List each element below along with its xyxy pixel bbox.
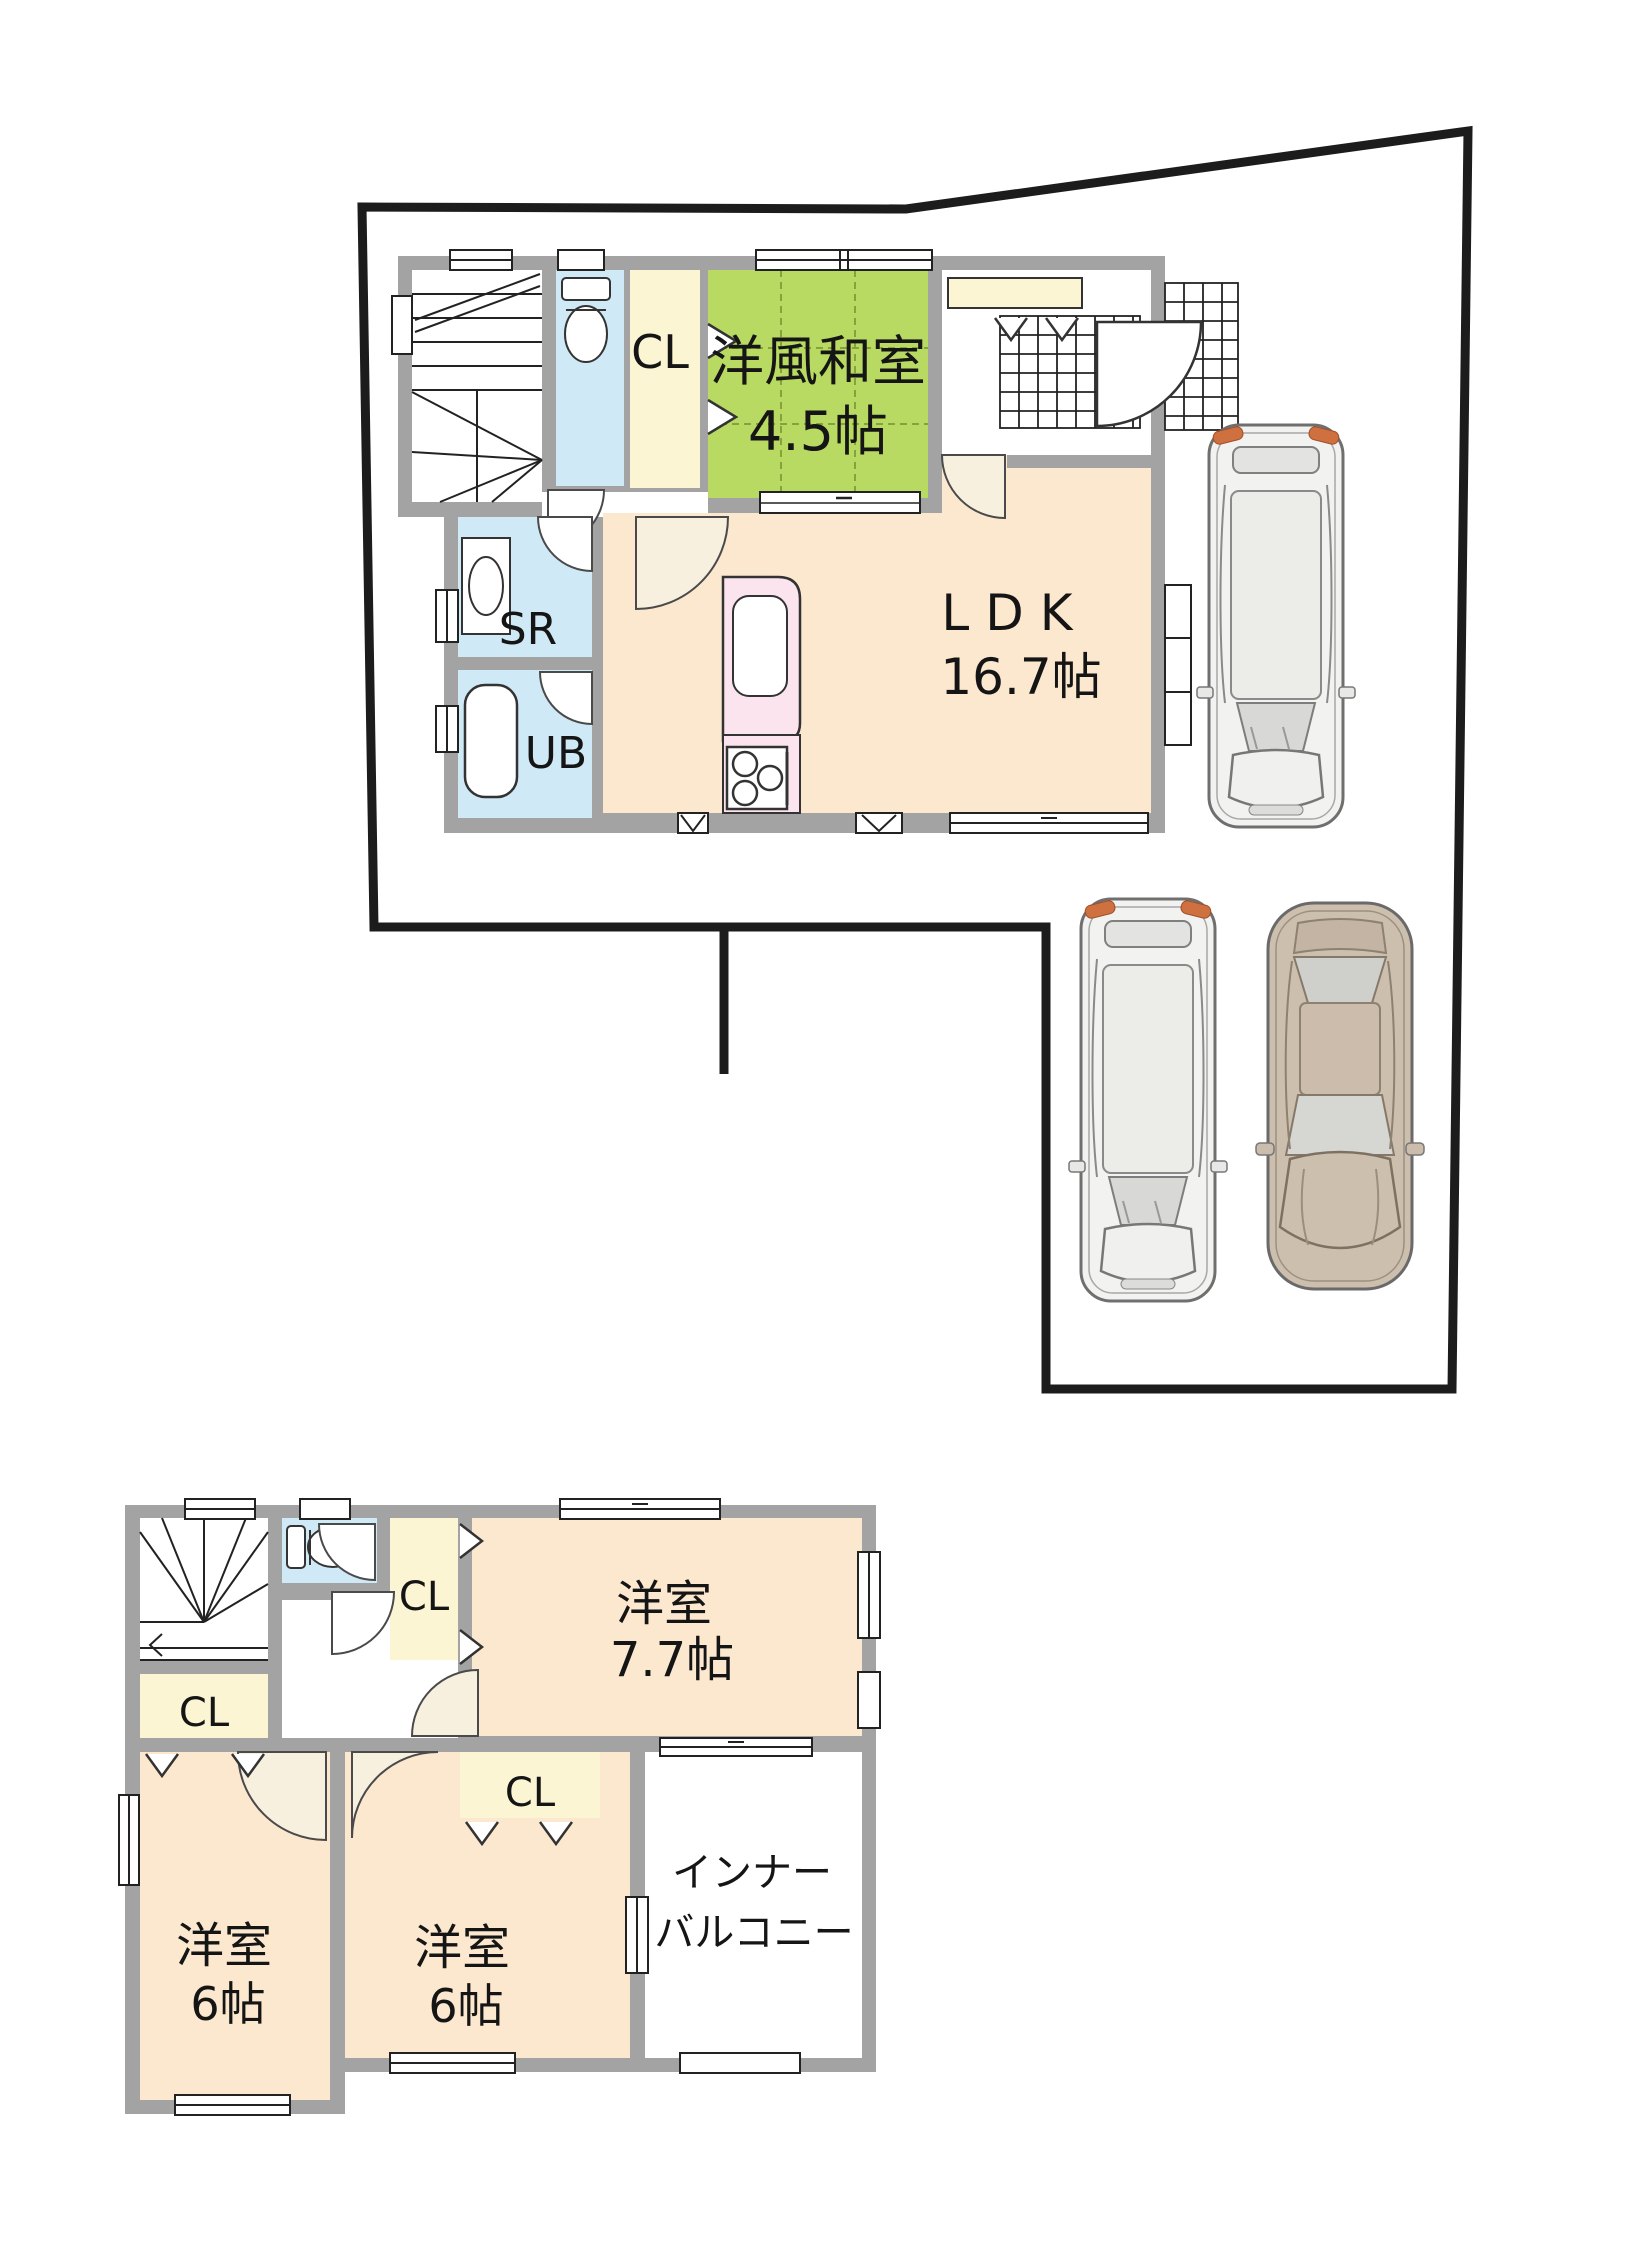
floorplan-page: CL 洋風和室 4.5帖 SR UB LDK 16.7帖 [0,0,1648,2260]
window-sliding [950,813,1148,833]
floor2-plan: CL CL CL 洋室 7.7帖 洋室 6帖 洋室 6帖 インナー バルコニー [119,1499,880,2115]
bedroom3-size-label: 6帖 [428,1979,503,2033]
bath-ub-label: UB [525,728,587,779]
side-mirror [1339,687,1355,698]
hood [1229,750,1323,808]
balcony-label-line2: バルコニー [654,1910,853,1956]
storage-sr-label: SR [499,604,558,655]
shoe-cabinet [948,278,1082,308]
washitsu-name-label: 洋風和室 [710,330,926,393]
ldk-name-label: LDK [941,584,1088,642]
rear-window [1294,957,1386,1003]
window-sliding [660,1738,812,1756]
window-sliding [560,1499,720,1519]
stove-icon [727,747,787,809]
window-small [678,813,708,833]
window-small [856,813,902,833]
windshield [1237,703,1315,751]
floor1-plan: CL 洋風和室 4.5帖 SR UB LDK 16.7帖 [392,250,1238,833]
washitsu-sliding-door [760,492,920,513]
trunk [1294,919,1386,953]
closet-2f-c-label: CL [505,1770,556,1816]
bedroom2-size-label: 6帖 [190,1977,265,2031]
balcony-label-line1: インナー [672,1850,832,1896]
side-mirror [1211,1161,1227,1172]
car-minivan-2 [1069,899,1227,1301]
ldk-size-label: 16.7帖 [940,648,1101,706]
room-closet-1f [630,270,700,488]
bedroom1-name-label: 洋室 [616,1576,712,1632]
washitsu-size-label: 4.5帖 [748,400,888,463]
toilet-icon [562,278,610,362]
bedroom1-size-label: 7.7帖 [610,1632,734,1688]
windshield [1286,1095,1394,1155]
side-mirror [1256,1143,1274,1155]
floorplan-image: CL 洋風和室 4.5帖 SR UB LDK 16.7帖 [0,0,1648,2260]
closet-1f-label: CL [631,325,689,379]
kitchen-sink-icon [733,596,787,696]
bedroom2-name-label: 洋室 [176,1918,272,1974]
car-sedan [1256,903,1424,1289]
window-balcony-side [626,1897,648,1973]
hood [1280,1152,1400,1248]
hood [1101,1224,1195,1282]
side-mirror [1069,1161,1085,1172]
closet-2f-a-label: CL [399,1574,450,1620]
closet-2f-b-label: CL [179,1690,230,1736]
bay-window [1165,585,1191,745]
bathtub-icon [465,685,517,797]
roof [1300,1003,1380,1095]
kitchen-counter [723,577,800,813]
windshield [1109,1177,1187,1225]
bedroom3-name-label: 洋室 [414,1920,510,1976]
room-toilet-1f [556,270,624,486]
room-inner-balcony [645,1752,862,2058]
side-mirror [1197,687,1213,698]
car-minivan-1 [1197,425,1355,827]
side-mirror [1406,1143,1424,1155]
